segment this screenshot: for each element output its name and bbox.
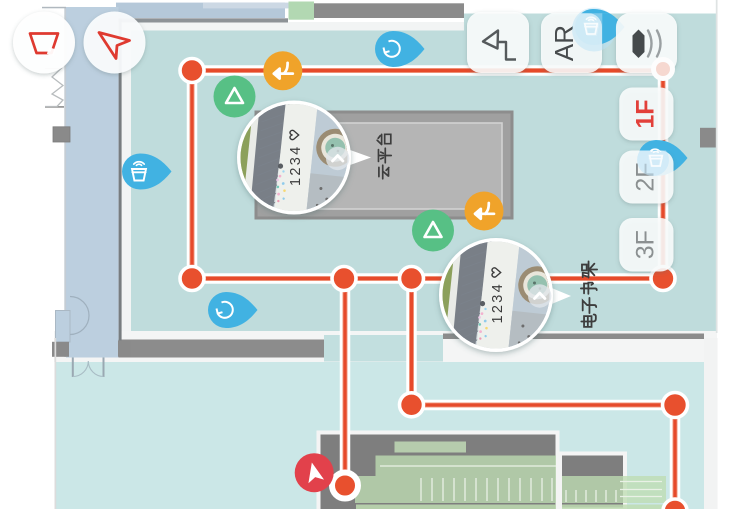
svg-text:3F: 3F xyxy=(632,230,660,259)
svg-text:1234: 1234 xyxy=(288,145,304,186)
svg-text:1234: 1234 xyxy=(490,282,506,323)
svg-text:1F: 1F xyxy=(632,99,660,128)
